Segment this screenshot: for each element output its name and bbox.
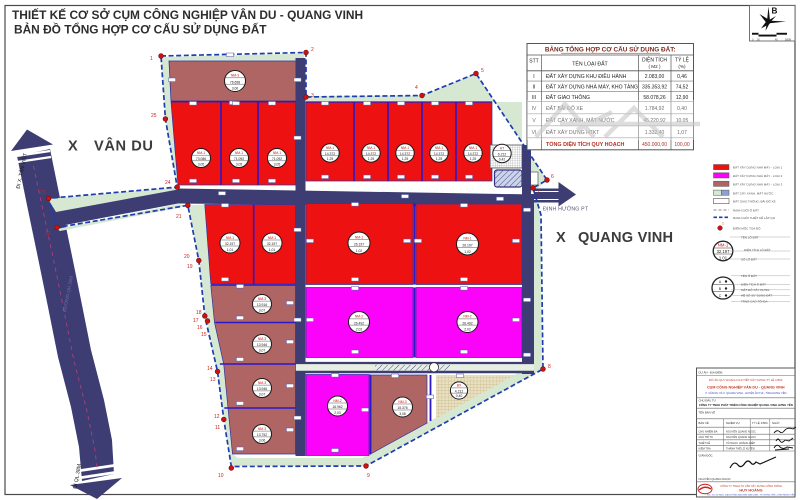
svg-text:I: I (533, 74, 534, 80)
svg-text:25: 25 (151, 113, 157, 119)
svg-text:X: X (556, 230, 566, 246)
svg-text:26.197: 26.197 (462, 244, 472, 248)
svg-text:4.212: 4.212 (455, 389, 464, 393)
svg-text:1: 1 (150, 56, 153, 62)
svg-text:15: 15 (201, 332, 207, 338)
svg-text:ĐẤT XÂY DỰNG NHÀ MÁY - LOẠI 1: ĐẤT XÂY DỰNG NHÀ MÁY - LOẠI 1 (733, 165, 783, 170)
svg-text:16.962: 16.962 (332, 405, 342, 409)
svg-text:DỰ ÁN - ĐỊA ĐIỂM: DỰ ÁN - ĐỊA ĐIỂM (699, 370, 724, 375)
svg-text:74,52: 74,52 (676, 85, 689, 91)
svg-text:CÔNG TY TNHH PHÁT TRIỂN CÔNG N: CÔNG TY TNHH PHÁT TRIỂN CÔNG NGHIỆP QUAN… (699, 402, 793, 407)
svg-text:C: C (719, 294, 722, 298)
svg-text:NHIỆM VỤ: NHIỆM VỤ (726, 420, 740, 425)
svg-text:3,05: 3,05 (236, 162, 243, 166)
svg-text:SỐ LÔ ĐẤT: SỐ LÔ ĐẤT (741, 257, 757, 262)
svg-text:ĐỒ ÁN QUY HOẠCH CHI TIẾT XÂY D: ĐỒ ÁN QUY HOẠCH CHI TIẾT XÂY DỰNG TỶ LỆ … (709, 377, 783, 382)
svg-text:2.083,00: 2.083,00 (645, 74, 665, 80)
svg-text:STT: STT (529, 59, 538, 65)
svg-text:32.197: 32.197 (225, 242, 235, 246)
svg-text:DIỆN TÍCH: DIỆN TÍCH (642, 56, 667, 64)
svg-text:13.916: 13.916 (257, 303, 267, 307)
svg-text:III: III (532, 95, 536, 101)
svg-text:335.353,92: 335.353,92 (642, 85, 667, 91)
svg-text:HỆ SỐ SỬ DỤNG ĐẤT: HỆ SỐ SỬ DỤNG ĐẤT (741, 293, 772, 298)
svg-text:ĐẤT CÂY XANH, MẶT NƯỚC: ĐẤT CÂY XANH, MẶT NƯỚC (733, 190, 774, 195)
svg-text:450.000,00: 450.000,00 (642, 142, 667, 148)
svg-text:2,03: 2,03 (334, 411, 341, 415)
svg-text:2: 2 (311, 47, 314, 53)
svg-text:GIÁM ĐỐC: GIÁM ĐỐC (699, 453, 713, 458)
svg-text:12,90: 12,90 (676, 95, 689, 101)
svg-text:VÂN DU: VÂN DU (94, 137, 154, 155)
svg-text:1.01: 1.01 (719, 255, 728, 260)
svg-text:32.197: 32.197 (267, 242, 277, 246)
svg-text:2,02: 2,02 (356, 327, 363, 331)
svg-text:0,46: 0,46 (677, 74, 687, 80)
svg-text:21: 21 (176, 214, 182, 220)
svg-text:3,08: 3,08 (399, 412, 406, 416)
svg-text:1,25: 1,25 (327, 157, 334, 161)
svg-text:9: 9 (367, 473, 370, 479)
svg-text:RANH GIỚI Ô ĐẤT: RANH GIỚI Ô ĐẤT (733, 208, 759, 213)
svg-text:10: 10 (218, 473, 224, 479)
svg-text:1,25: 1,25 (402, 157, 409, 161)
svg-text:TỶ LỆ 1/500: TỶ LỆ 1/500 (752, 420, 768, 425)
svg-text:NM-2: NM-2 (355, 315, 363, 319)
svg-text:X: X (68, 139, 78, 155)
svg-text:TỶ LỆ: TỶ LỆ (675, 56, 690, 64)
svg-text:6: 6 (551, 174, 554, 180)
svg-text:22: 22 (45, 231, 51, 237)
svg-text:II: II (533, 85, 536, 91)
svg-text:HT: HT (500, 147, 505, 151)
svg-text:TẦNG CAO TỐI ĐA: TẦNG CAO TỐI ĐA (741, 299, 767, 304)
svg-text:NM-1: NM-1 (326, 146, 334, 150)
svg-text:23: 23 (40, 190, 46, 196)
svg-text:32.197: 32.197 (717, 249, 730, 254)
svg-text:NM-1: NM-1 (355, 236, 363, 240)
svg-text:3,07: 3,07 (259, 308, 266, 312)
svg-text:5: 5 (481, 68, 484, 74)
svg-text:TÊN LOẠI ĐẤT: TÊN LOẠI ĐẤT (572, 60, 608, 68)
svg-text:ĐẤT XÂY DỰNG NHÀ MÁY - LOẠI 3: ĐẤT XÂY DỰNG NHÀ MÁY - LOẠI 3 (733, 181, 783, 186)
svg-text:(%): (%) (678, 64, 686, 69)
svg-text:TỔNG DIỆN TÍCH QUY HOẠCH: TỔNG DIỆN TÍCH QUY HOẠCH (546, 140, 624, 148)
svg-text:ĐẤT GIAO THÔNG: ĐẤT GIAO THÔNG (546, 94, 590, 101)
svg-text:NM-1: NM-1 (469, 146, 477, 150)
svg-text:16: 16 (197, 325, 203, 331)
svg-text:11: 11 (215, 425, 220, 431)
svg-text:BẢN VẼ: BẢN VẼ (699, 420, 709, 425)
svg-text:76.658: 76.658 (230, 80, 240, 84)
svg-text:NM-3: NM-3 (258, 337, 266, 341)
svg-text:Đ/C: SỐ 25 NGÕ 118 ĐƯỜNG NGUYỄ: Đ/C: SỐ 25 NGÕ 118 ĐƯỜNG NGUYỄN VĂN LINH… (707, 493, 795, 496)
svg-text:17: 17 (193, 318, 199, 324)
svg-text:14: 14 (207, 366, 213, 372)
svg-text:4: 4 (415, 85, 418, 91)
svg-text:26.492: 26.492 (354, 321, 364, 325)
svg-text:1,02: 1,02 (356, 249, 363, 253)
svg-text:18: 18 (196, 310, 202, 316)
svg-text:13.946: 13.946 (257, 343, 267, 347)
svg-text:1,25: 1,25 (470, 157, 477, 161)
svg-text:TÊN LÔ ĐẤT: TÊN LÔ ĐẤT (741, 235, 759, 240)
svg-text:100,00: 100,00 (674, 142, 690, 148)
svg-text:24: 24 (165, 180, 171, 186)
svg-text:2,02: 2,02 (464, 327, 471, 331)
svg-text:3: 3 (311, 93, 314, 99)
svg-text:TÊN BẢN VẼ: TÊN BẢN VẼ (699, 410, 716, 415)
svg-text:71.092: 71.092 (234, 157, 244, 161)
svg-text:ĐẤT XÂY DỰNG NHÀ MÁY, KHO TÀNG: ĐẤT XÂY DỰNG NHÀ MÁY, KHO TÀNG (546, 84, 638, 91)
svg-text:NM-3: NM-3 (231, 74, 239, 78)
svg-text:NM-3: NM-3 (398, 400, 406, 404)
svg-text:QUANG VINH: QUANG VINH (578, 230, 673, 246)
svg-text:14.372: 14.372 (434, 152, 444, 156)
svg-text:NGÀY: NGÀY (772, 421, 780, 425)
svg-text:14.372: 14.372 (325, 152, 335, 156)
svg-text:HUY HOÀNG: HUY HOÀNG (739, 488, 762, 493)
svg-text:1,01: 1,01 (227, 248, 234, 252)
svg-text:8: 8 (548, 364, 551, 370)
svg-text:ĐẤT GIAO THÔNG, BÃI ĐỖ XE: ĐẤT GIAO THÔNG, BÃI ĐỖ XE (733, 199, 776, 204)
svg-text:DIỆN TÍCH LÔ ĐẤT: DIỆN TÍCH LÔ ĐẤT (744, 247, 771, 252)
svg-text:20: 20 (184, 254, 190, 260)
svg-text:12: 12 (214, 414, 220, 420)
svg-text:1,25: 1,25 (368, 157, 375, 161)
svg-text:14.372: 14.372 (468, 152, 478, 156)
svg-text:500M: 500M (785, 39, 791, 42)
svg-text:ĐẤT XÂY DỰNG NHÀ MÁY - LOẠI 2: ĐẤT XÂY DỰNG NHÀ MÁY - LOẠI 2 (733, 173, 783, 178)
svg-text:26.492: 26.492 (462, 321, 472, 325)
svg-text:THIẾT KẾ CƠ SỞ CỤM CÔNG NGHIỆP: THIẾT KẾ CƠ SỞ CỤM CÔNG NGHIỆP VÂN DU - … (12, 7, 363, 22)
svg-text:0,42: 0,42 (499, 158, 506, 162)
svg-text:TÊN Ô ĐẤT: TÊN Ô ĐẤT (741, 273, 757, 278)
svg-text:NM-1: NM-1 (268, 236, 276, 240)
svg-text:26.197: 26.197 (354, 243, 364, 247)
svg-text:3,05: 3,05 (274, 162, 281, 166)
svg-text:BX: BX (457, 384, 462, 388)
svg-text:3,07: 3,07 (259, 348, 266, 352)
svg-text:15.376: 15.376 (397, 406, 407, 410)
svg-text:13: 13 (210, 377, 216, 383)
svg-text:NM-1: NM-1 (273, 151, 281, 155)
svg-text:NM-1: NM-1 (235, 151, 243, 155)
svg-text:1: 1 (722, 222, 724, 226)
svg-text:NM-1: NM-1 (435, 146, 443, 150)
svg-text:NM-3: NM-3 (258, 427, 266, 431)
svg-text:MẬT ĐỘ XÂY DỰNG: MẬT ĐỘ XÂY DỰNG (741, 287, 770, 292)
svg-text:ĐIỂM MỐC TỌA ĐỘ: ĐIỂM MỐC TỌA ĐỘ (733, 226, 761, 231)
svg-text:1,25: 1,25 (436, 157, 443, 161)
svg-text:NM-2: NM-2 (463, 315, 471, 319)
svg-text:NM-1: NM-1 (226, 236, 234, 240)
svg-text:58.078,26: 58.078,26 (643, 95, 665, 101)
svg-text:NM-3: NM-3 (258, 297, 266, 301)
svg-text:( M2 ): ( M2 ) (649, 64, 661, 69)
svg-text:13.946: 13.946 (257, 387, 267, 391)
svg-text:RANH GIỚI THIẾT KẾ LẬP QH: RANH GIỚI THIẾT KẾ LẬP QH (733, 215, 775, 220)
svg-text:7: 7 (537, 190, 540, 196)
svg-text:NM-2: NM-2 (333, 399, 341, 403)
svg-text:0,40: 0,40 (456, 394, 463, 398)
svg-text:DIỆN TÍCH Ô ĐẤT: DIỆN TÍCH Ô ĐẤT (741, 282, 766, 287)
svg-text:ĐẤT XÂY DỰNG KHU ĐIỀU HÀNH: ĐẤT XÂY DỰNG KHU ĐIỀU HÀNH (546, 73, 627, 80)
svg-text:19: 19 (187, 264, 193, 270)
svg-text:3,06: 3,06 (259, 438, 266, 442)
svg-text:BẢN ĐỒ TỔNG HỢP CƠ CẤU SỬ DỤNG: BẢN ĐỒ TỔNG HỢP CƠ CẤU SỬ DỤNG ĐẤT (14, 22, 267, 37)
svg-text:NM-1: NM-1 (197, 151, 205, 155)
svg-text:3,07: 3,07 (259, 392, 266, 396)
svg-text:6.212: 6.212 (498, 153, 507, 157)
svg-text:3,05: 3,05 (198, 162, 205, 166)
svg-text:73.086: 73.086 (196, 157, 206, 161)
svg-text:3,06: 3,06 (232, 86, 239, 90)
svg-text:NM-3: NM-3 (258, 381, 266, 385)
svg-text:1,01: 1,01 (269, 248, 276, 252)
svg-text:NGUYỄN QUANG NGỌC: NGUYỄN QUANG NGỌC (699, 476, 731, 481)
svg-text:NM-1: NM-1 (463, 237, 471, 241)
svg-text:B: B (772, 7, 778, 16)
svg-text:71.092: 71.092 (272, 157, 282, 161)
svg-text:NM-1: NM-1 (401, 146, 409, 150)
svg-text:CHỦ ĐẦU TƯ: CHỦ ĐẦU TƯ (699, 398, 717, 403)
svg-text:13.752: 13.752 (257, 433, 267, 437)
svg-text:NM-1: NM-1 (367, 146, 375, 150)
svg-text:14.372: 14.372 (366, 152, 376, 156)
svg-text:14.372: 14.372 (400, 152, 410, 156)
svg-text:1,02: 1,02 (464, 250, 471, 254)
svg-text:ĐỊNH HƯỚNG PT: ĐỊNH HƯỚNG PT (543, 206, 589, 213)
svg-text:NM-1: NM-1 (718, 243, 729, 248)
svg-text:CỤM CÔNG NGHIỆP VÂN DU - QUANG: CỤM CÔNG NGHIỆP VÂN DU - QUANG VINH (707, 385, 785, 390)
